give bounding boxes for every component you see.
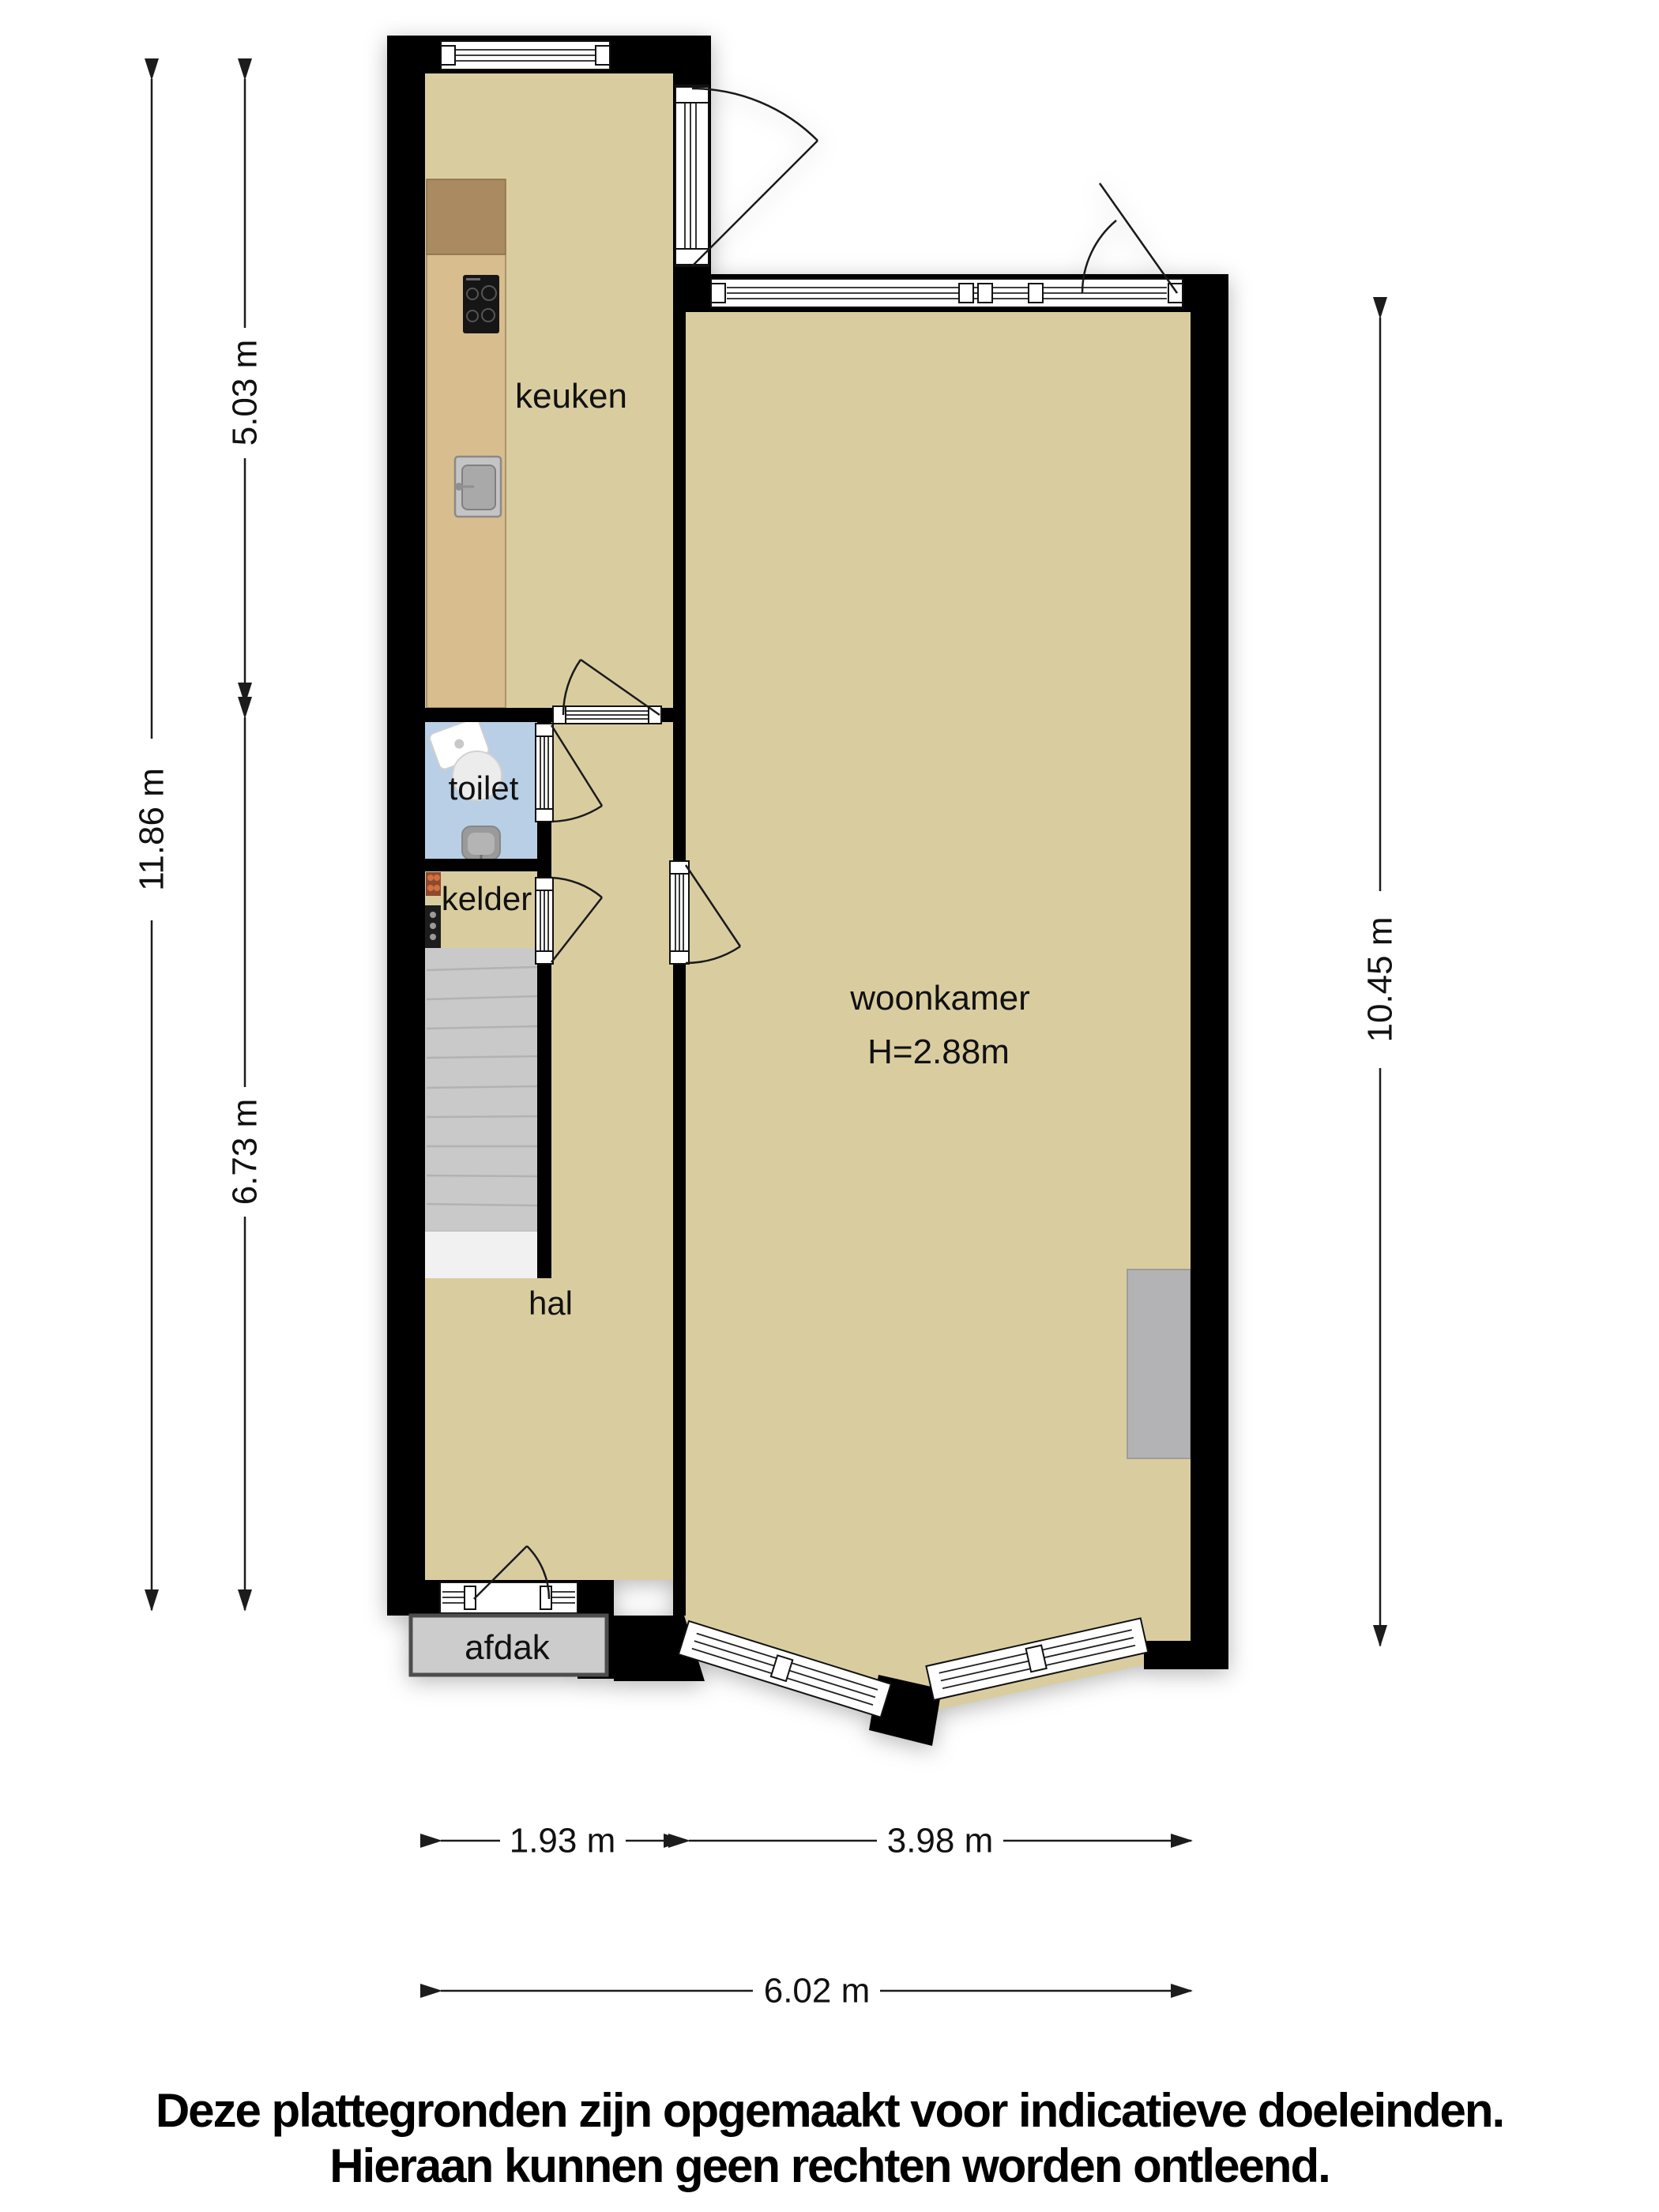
- floorplan-page: keuken toilet kelder hal woonkamer H=2.8…: [0, 0, 1659, 2212]
- wine-rack-icon: [426, 872, 441, 896]
- dim-left-lower-text: 6.73 m: [226, 1099, 265, 1206]
- dim-bottom-total-text: 6.02 m: [764, 1972, 871, 2011]
- kitchen-sink-icon: [455, 457, 501, 517]
- dim-left-lower: 6.73 m: [226, 717, 265, 1610]
- wall-unit: [1127, 1270, 1191, 1458]
- cooktop-icon: [463, 275, 499, 333]
- disclaimer: Deze plattegronden zijn opgemaakt voor i…: [156, 2084, 1503, 2192]
- dim-bottom-total: 6.02 m: [441, 1972, 1191, 2011]
- disclaimer-line2: Hieraan kunnen geen rechten worden ontle…: [329, 2139, 1330, 2192]
- dim-left-total-text: 11.86 m: [133, 768, 171, 891]
- dim-left-total: 11.86 m: [133, 79, 171, 1610]
- dim-left-upper: 5.03 m: [226, 79, 265, 703]
- wall-toilet-bottom: [425, 859, 551, 871]
- disclaimer-line1: Deze plattegronden zijn opgemaakt voor i…: [156, 2084, 1503, 2137]
- dim-bottom-left-text: 1.93 m: [510, 1822, 616, 1860]
- dim-right-total: 10.45 m: [1361, 318, 1400, 1646]
- wall-bay-right-corner: [1144, 1641, 1228, 1669]
- dim-right-total-text: 10.45 m: [1361, 917, 1400, 1043]
- woonkamer-label: woonkamer: [849, 979, 1029, 1018]
- keuken-label: keuken: [515, 377, 627, 416]
- woonkamer-height-label: H=2.88m: [867, 1033, 1010, 1071]
- dim-bottom-right: 3.98 m: [689, 1822, 1191, 1860]
- keuken-exterior-door: [675, 85, 818, 266]
- wall-right: [1191, 274, 1228, 1669]
- kelder-label: kelder: [442, 880, 532, 917]
- hal-window-front: [440, 1582, 577, 1613]
- toilet-bowl-icon: [462, 826, 500, 864]
- wall-left: [387, 36, 425, 1616]
- hal-label: hal: [529, 1285, 573, 1322]
- stairs-base: [425, 948, 539, 1231]
- toilet-label: toilet: [449, 769, 519, 807]
- kitchen-cabinet: [427, 179, 506, 254]
- stairs-landing: [425, 1231, 539, 1278]
- dim-left-upper-text: 5.03 m: [226, 340, 265, 446]
- afdak-label: afdak: [465, 1628, 551, 1667]
- storage-strip-icon: [425, 905, 441, 948]
- floorplan-canvas: keuken toilet kelder hal woonkamer H=2.8…: [0, 0, 1659, 2212]
- dim-bottom-right-text: 3.98 m: [887, 1822, 994, 1860]
- woonkamer-window: [711, 279, 1183, 307]
- keuken-window: [441, 41, 610, 70]
- dim-bottom-left: 1.93 m: [441, 1822, 684, 1860]
